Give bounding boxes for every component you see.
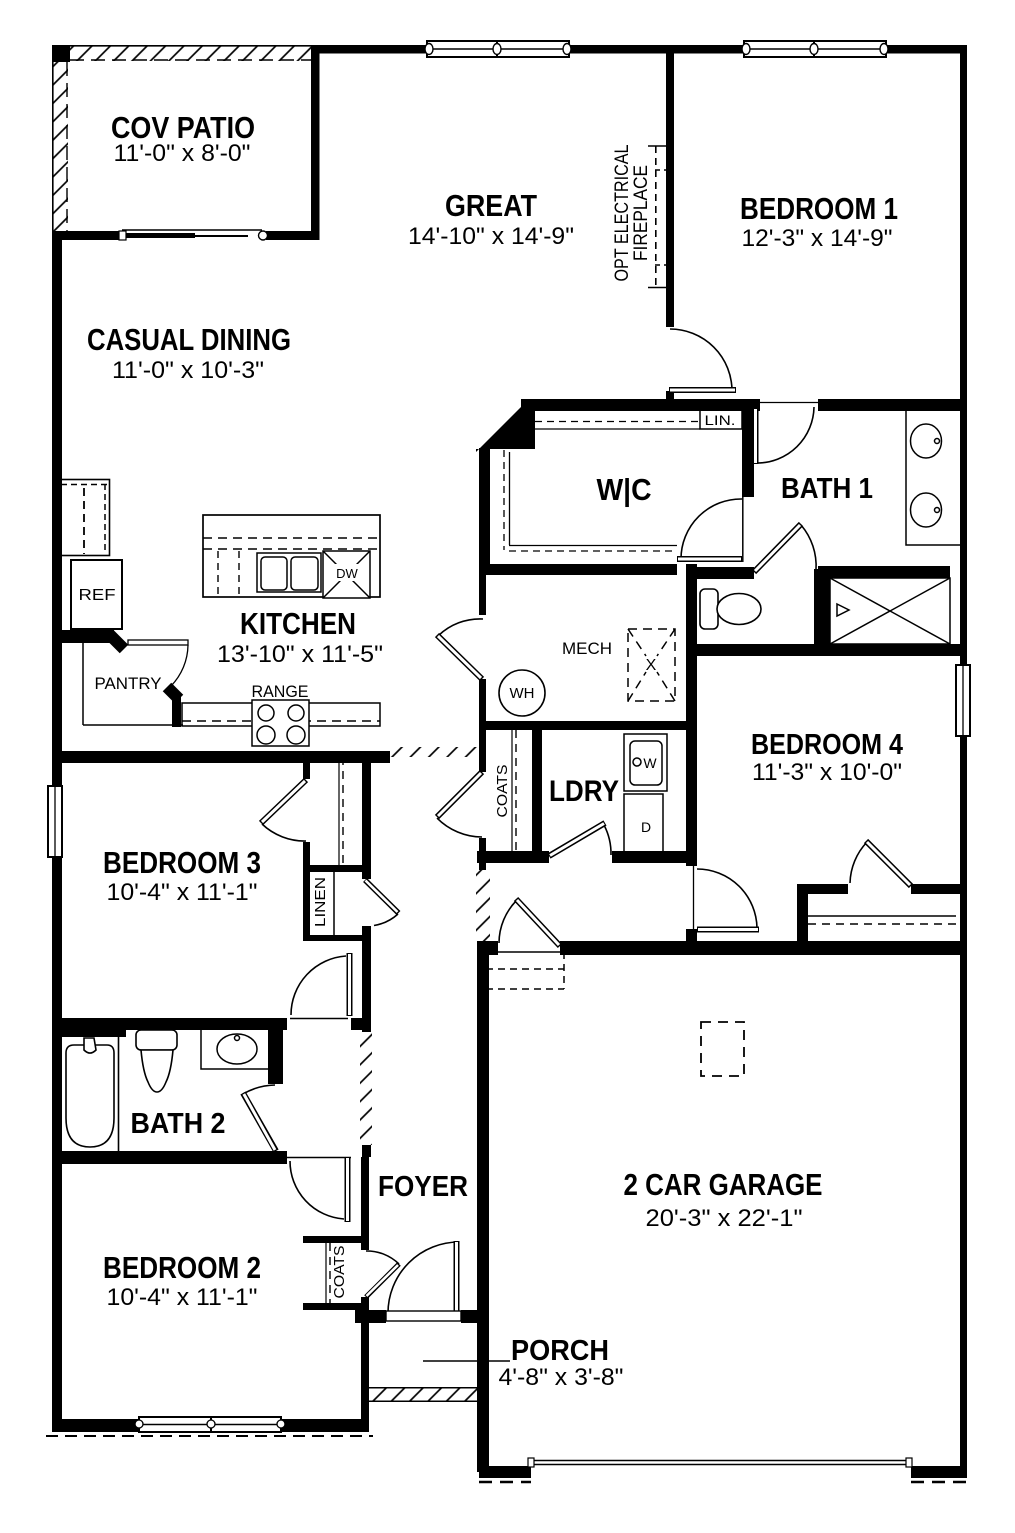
svg-text:14'-10" x 14'-9": 14'-10" x 14'-9": [408, 223, 574, 250]
svg-text:RANGE: RANGE: [252, 683, 309, 701]
svg-text:11'-0" x 8'-0": 11'-0" x 8'-0": [114, 140, 251, 167]
svg-text:10'-4" x 11'-1": 10'-4" x 11'-1": [107, 1284, 258, 1311]
svg-text:OPT ELECTRICAL: OPT ELECTRICAL: [612, 145, 633, 282]
svg-text:BEDROOM 4: BEDROOM 4: [751, 729, 903, 761]
svg-text:LINEN: LINEN: [312, 877, 329, 927]
svg-text:DW: DW: [336, 566, 358, 581]
svg-text:CASUAL DINING: CASUAL DINING: [87, 322, 291, 357]
svg-text:BATH 1: BATH 1: [781, 473, 873, 505]
svg-text:BEDROOM 2: BEDROOM 2: [103, 1250, 261, 1285]
svg-text:D: D: [641, 819, 651, 835]
svg-text:2 CAR GARAGE: 2 CAR GARAGE: [624, 1167, 823, 1202]
svg-text:WH: WH: [510, 685, 535, 702]
svg-text:FOYER: FOYER: [378, 1171, 468, 1203]
svg-text:BEDROOM 1: BEDROOM 1: [740, 191, 898, 226]
svg-text:COATS: COATS: [331, 1246, 348, 1299]
svg-text:FIREPLACE: FIREPLACE: [631, 165, 652, 261]
svg-text:REF: REF: [79, 587, 116, 604]
svg-text:LIN.: LIN.: [705, 413, 736, 428]
svg-text:BATH 2: BATH 2: [131, 1108, 226, 1140]
svg-text:LDRY: LDRY: [549, 775, 619, 808]
svg-text:W: W: [643, 755, 657, 771]
svg-text:4'-8" x 3'-8": 4'-8" x 3'-8": [499, 1364, 624, 1391]
svg-text:KITCHEN: KITCHEN: [240, 606, 356, 641]
svg-text:PORCH: PORCH: [511, 1335, 609, 1367]
svg-text:12'-3" x 14'-9": 12'-3" x 14'-9": [742, 225, 893, 252]
svg-text:W|C: W|C: [597, 472, 652, 507]
svg-text:13'-10" x 11'-5": 13'-10" x 11'-5": [217, 641, 383, 668]
svg-text:COATS: COATS: [494, 765, 511, 818]
svg-text:20'-3" x 22'-1": 20'-3" x 22'-1": [646, 1205, 803, 1232]
svg-text:10'-4" x 11'-1": 10'-4" x 11'-1": [107, 879, 258, 906]
svg-text:GREAT: GREAT: [445, 188, 537, 223]
svg-text:BEDROOM 3: BEDROOM 3: [103, 845, 261, 880]
svg-text:MECH: MECH: [562, 640, 612, 658]
svg-text:11'-3" x 10'-0": 11'-3" x 10'-0": [752, 759, 902, 786]
svg-text:11'-0" x 10'-3": 11'-0" x 10'-3": [112, 357, 264, 384]
svg-text:PANTRY: PANTRY: [95, 675, 162, 693]
svg-text:X: X: [646, 657, 657, 674]
